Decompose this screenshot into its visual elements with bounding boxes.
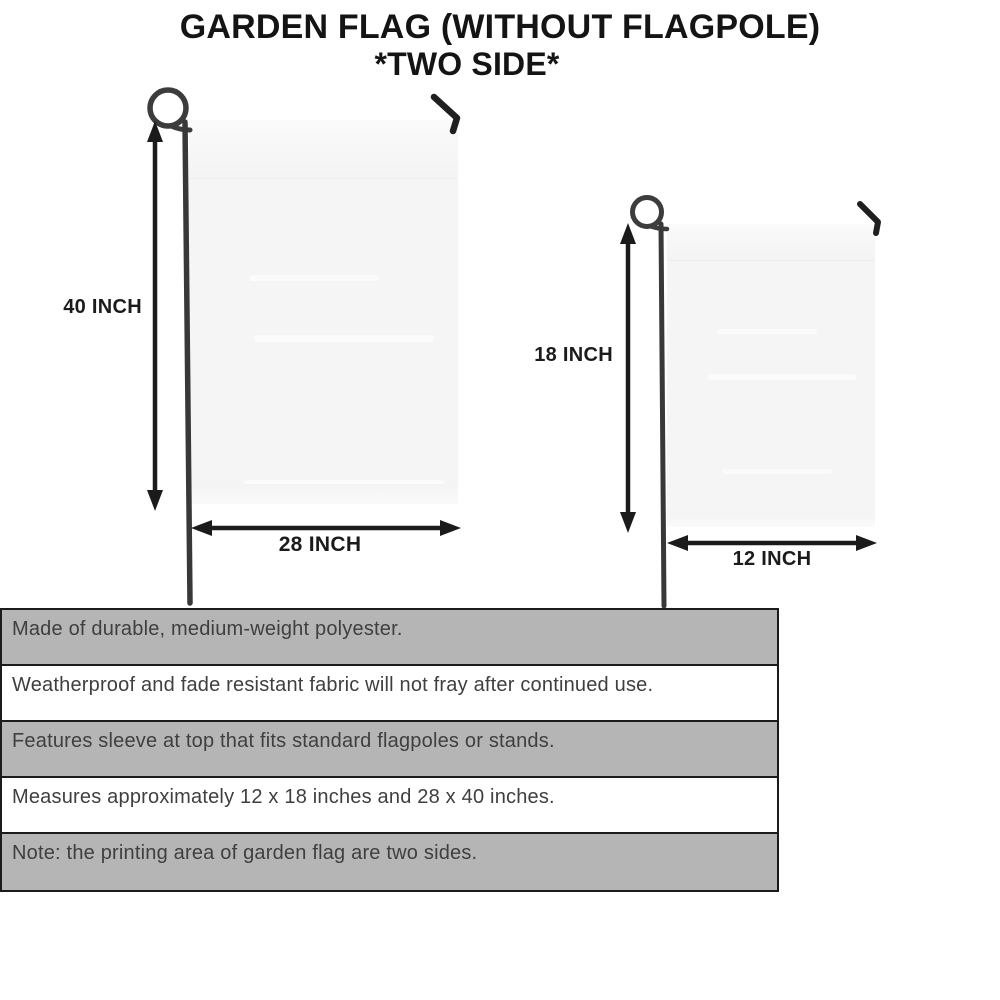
large-height-arrow [147, 121, 163, 511]
small-width-label: 12 INCH [682, 548, 862, 571]
small-height-label: 18 INCH [513, 344, 613, 367]
garden-flag-infographic: GARDEN FLAG (WITHOUT FLAGPOLE) *TWO SIDE… [0, 0, 1000, 1000]
feature-row: Measures approximately 12 x 18 inches an… [2, 778, 777, 834]
feature-row: Note: the printing area of garden flag a… [2, 834, 777, 890]
large-width-label: 28 INCH [230, 533, 410, 557]
small-flag-hook-icon [860, 204, 878, 233]
feature-table: Made of durable, medium-weight polyester… [0, 608, 779, 892]
feature-row: Made of durable, medium-weight polyester… [2, 610, 777, 666]
large-height-label: 40 INCH [42, 296, 142, 319]
large-flag-hook-icon [434, 97, 457, 131]
small-flagpole-icon [633, 198, 668, 607]
feature-row: Features sleeve at top that fits standar… [2, 722, 777, 778]
small-height-arrow [620, 223, 636, 533]
feature-row: Weatherproof and fade resistant fabric w… [2, 666, 777, 722]
